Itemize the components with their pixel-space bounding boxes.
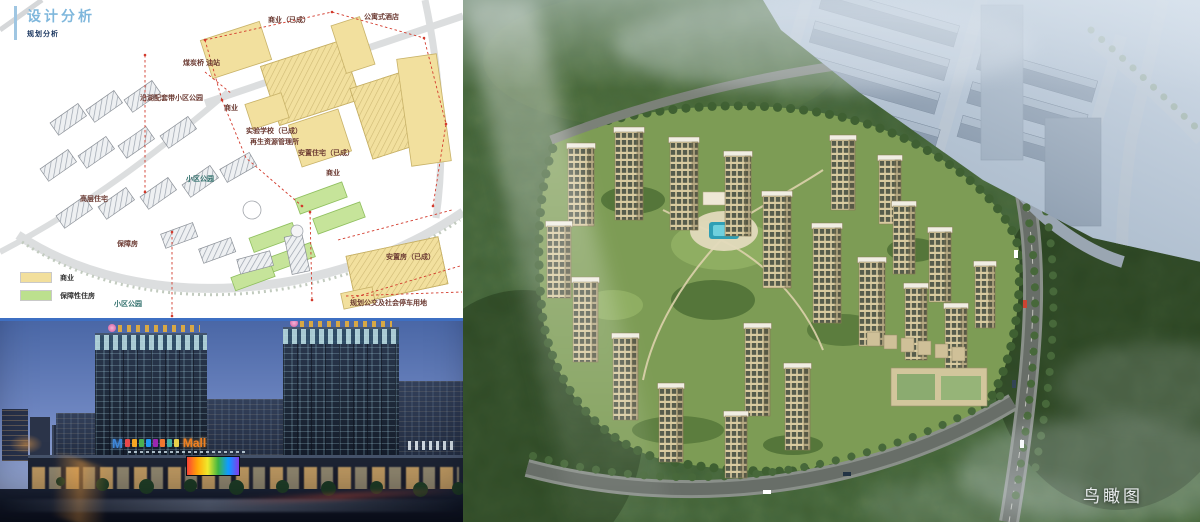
mall-sign-lead: M: [112, 436, 123, 451]
sign-character-chip: [167, 439, 172, 447]
mall-photo-panel: M Mall: [0, 321, 463, 522]
office-tower-right: [283, 327, 399, 461]
street: [0, 489, 463, 522]
plan-label-park-bottom: 小区公园: [114, 301, 142, 308]
plan-label-commercial-done: 商业（已成）: [268, 17, 310, 24]
plan-label-park-mid: 小区公园: [186, 176, 214, 183]
mall-sign-tail: Mall: [183, 436, 206, 450]
plan-label-commercial-right: 商业: [326, 170, 340, 177]
mall-sign: M Mall: [112, 434, 206, 452]
aerial-caption: 鸟瞰图: [1083, 482, 1143, 507]
legend-swatch-commercial: [20, 272, 52, 283]
midrise-building-left: [56, 413, 98, 461]
sign-character-chip: [146, 439, 151, 447]
legend-swatch-affordable: [20, 290, 52, 301]
sign-character-chip: [132, 439, 137, 447]
aerial-rendering: [463, 0, 1200, 522]
street-trees: [56, 477, 65, 486]
sign-character-chip: [160, 439, 165, 447]
title-accent-bar: [14, 6, 17, 40]
sign-character-chip: [153, 439, 158, 447]
sign-character-chip: [174, 439, 179, 447]
plan-label-affordable: 保障房: [117, 241, 138, 248]
site-plan-panel: 设计分析 规划分析 煤炭桥 油站 沿湖配套带小区公园 商业 实验学校（已成） 再…: [0, 0, 463, 318]
left-column: 设计分析 规划分析 煤炭桥 油站 沿湖配套带小区公园 商业 实验学校（已成） 再…: [0, 0, 463, 522]
led-screen: [186, 456, 240, 476]
title-block: 设计分析 规划分析: [14, 6, 95, 40]
plan-label-oil-station: 煤炭桥 油站: [183, 60, 220, 67]
plan-label-apartment-hotel: 公寓式酒店: [364, 14, 399, 21]
plaza-circle: [243, 201, 261, 219]
secondary-sign: [408, 441, 456, 450]
sign-character-chip: [139, 439, 144, 447]
plan-label-lake-park: 沿湖配套带小区公园: [140, 95, 203, 102]
legend-item-commercial: 商业: [20, 272, 95, 283]
legend-item-affordable: 保障性住房: [20, 290, 95, 301]
presentation-board: 设计分析 规划分析 煤炭桥 油站 沿湖配套带小区公园 商业 实验学校（已成） 再…: [0, 0, 1200, 522]
rooftop-signage-left: [118, 325, 200, 332]
sign-character-chip: [125, 439, 130, 447]
plan-label-commercial-mid: 商业: [224, 105, 238, 112]
plan-legend: 商业 保障性住房: [20, 272, 95, 308]
tower-circle: [291, 225, 303, 237]
plan-label-transport-land: 规划公交及社会停车用地: [350, 300, 427, 307]
plan-label-resettlement-mid: 安置住宅（已成）: [298, 150, 354, 157]
legend-label-commercial: 商业: [60, 273, 74, 283]
legend-label-affordable: 保障性住房: [60, 291, 95, 301]
plan-subtitle: 规划分析: [27, 29, 95, 39]
aerial-view-panel: 鸟瞰图: [463, 0, 1200, 522]
rooftop-signage-right: [300, 321, 392, 327]
plan-title: 设计分析: [27, 6, 95, 26]
plan-label-resettlement-done: 安置房（已成）: [386, 254, 435, 261]
distant-city-glow: [4, 431, 48, 457]
site-plan-drawing: [0, 0, 463, 318]
plan-label-school: 实验学校（已成）: [246, 128, 302, 135]
plan-label-highrise: 高层住宅: [80, 196, 108, 203]
plan-label-management: 再生资源管理所: [250, 139, 299, 146]
